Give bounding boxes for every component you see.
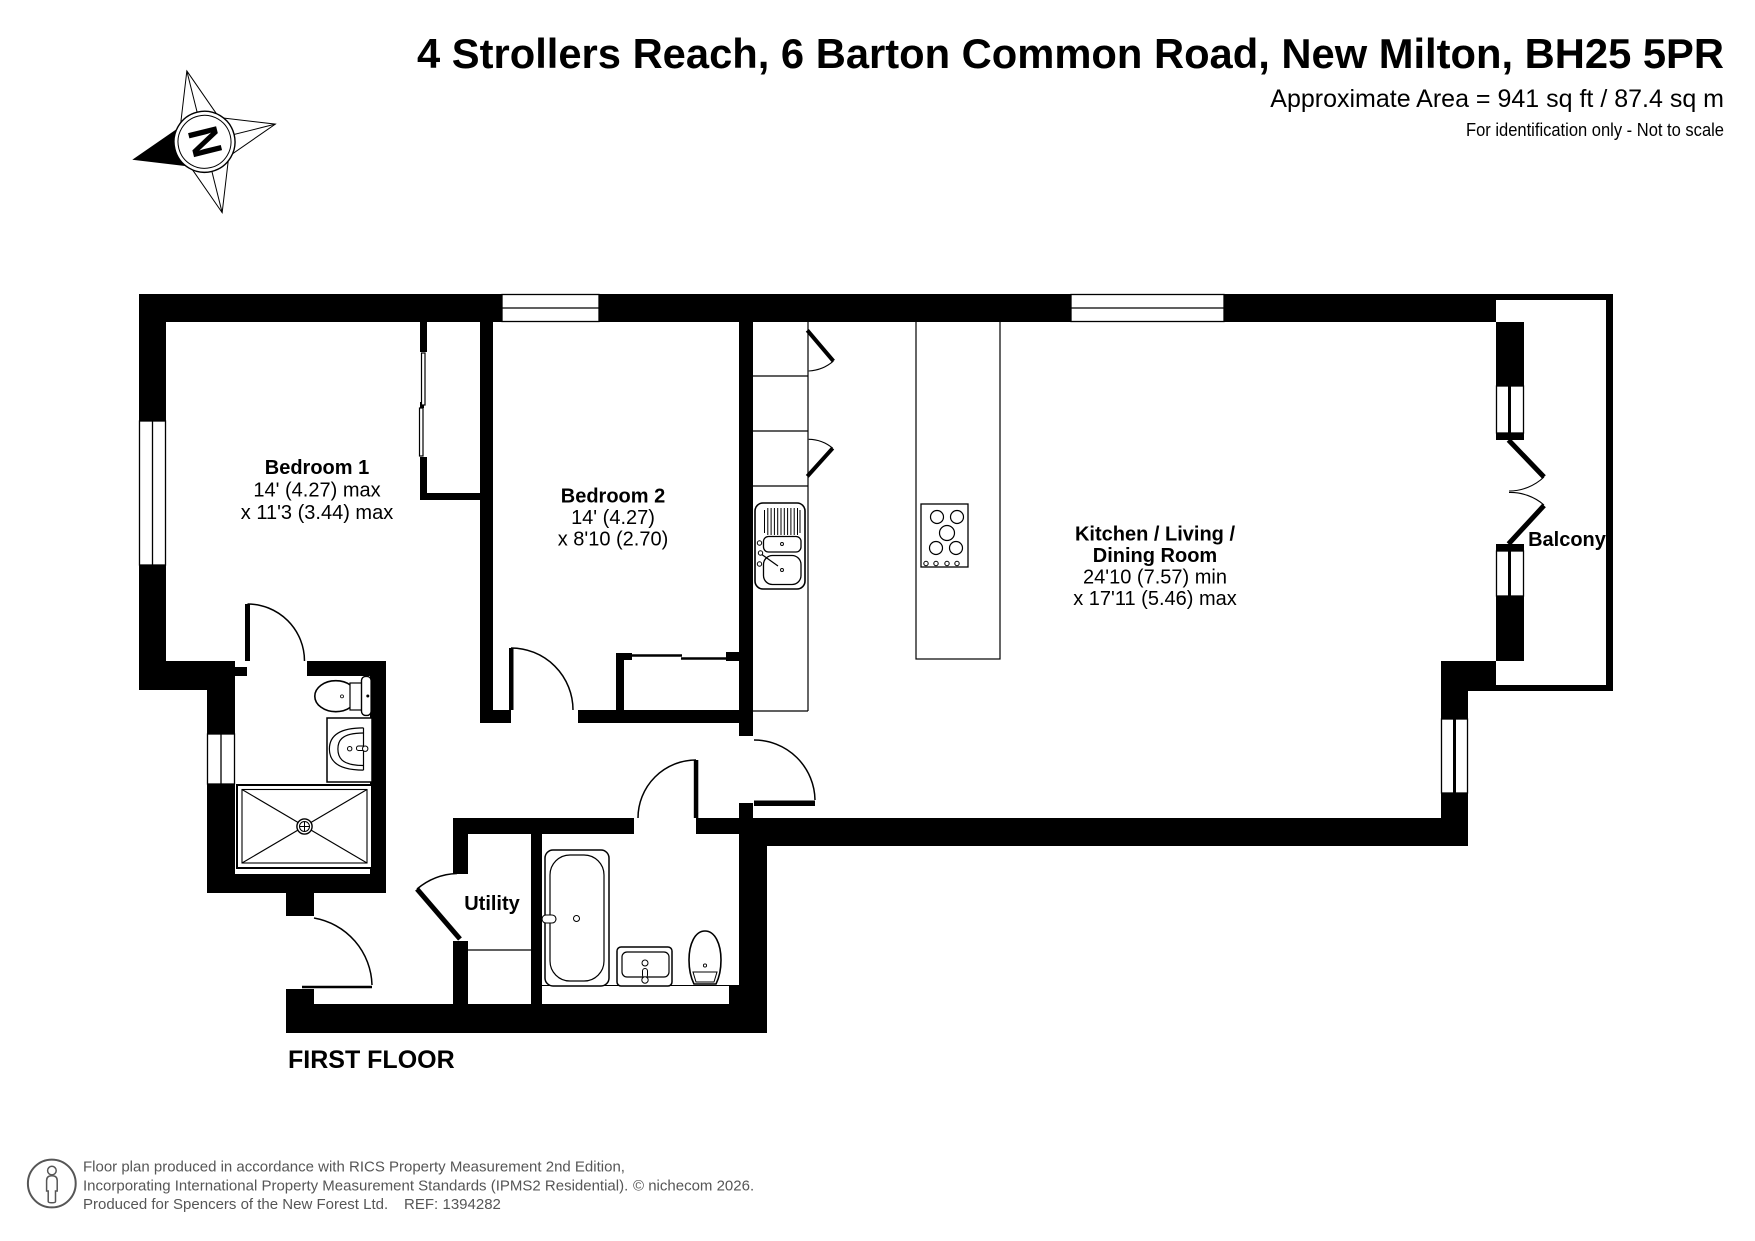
svg-text:14' (4.27) max: 14' (4.27) max — [253, 480, 380, 502]
svg-text:© nichecom 2026.: © nichecom 2026. — [633, 1178, 754, 1195]
svg-text:Balcony: Balcony — [1528, 529, 1607, 551]
svg-text:Approximate Area = 941 sq ft /: Approximate Area = 941 sq ft / 87.4 sq m — [1270, 85, 1724, 113]
svg-text:Utility: Utility — [464, 893, 520, 915]
svg-text:Kitchen / Living /: Kitchen / Living / — [1075, 524, 1235, 546]
svg-text:REF:: REF: — [404, 1196, 438, 1213]
svg-text:Incorporating International Pr: Incorporating International Property Mea… — [83, 1178, 628, 1195]
svg-text:x 17'11 (5.46) max: x 17'11 (5.46) max — [1073, 588, 1237, 610]
svg-text:x 8'10 (2.70): x 8'10 (2.70) — [558, 529, 669, 551]
svg-text:Floor plan produced in accorda: Floor plan produced in accordance with R… — [83, 1159, 625, 1176]
svg-text:For identification only - Not: For identification only - Not to scale — [1466, 120, 1724, 140]
svg-text:Bedroom 1: Bedroom 1 — [265, 457, 369, 479]
svg-text:Dining Room: Dining Room — [1093, 545, 1217, 567]
svg-text:14' (4.27): 14' (4.27) — [571, 507, 655, 529]
svg-text:4 Strollers Reach, 6 Barton Co: 4 Strollers Reach, 6 Barton Common Road,… — [417, 30, 1724, 77]
svg-text:24'10 (7.57) min: 24'10 (7.57) min — [1083, 567, 1227, 589]
svg-text:1394282: 1394282 — [443, 1196, 501, 1213]
svg-text:x 11'3 (3.44) max: x 11'3 (3.44) max — [241, 502, 393, 524]
svg-text:Bedroom 2: Bedroom 2 — [561, 486, 665, 508]
svg-text:FIRST FLOOR: FIRST FLOOR — [288, 1046, 455, 1074]
svg-text:Produced for Spencers of the N: Produced for Spencers of the New Forest … — [83, 1196, 388, 1213]
